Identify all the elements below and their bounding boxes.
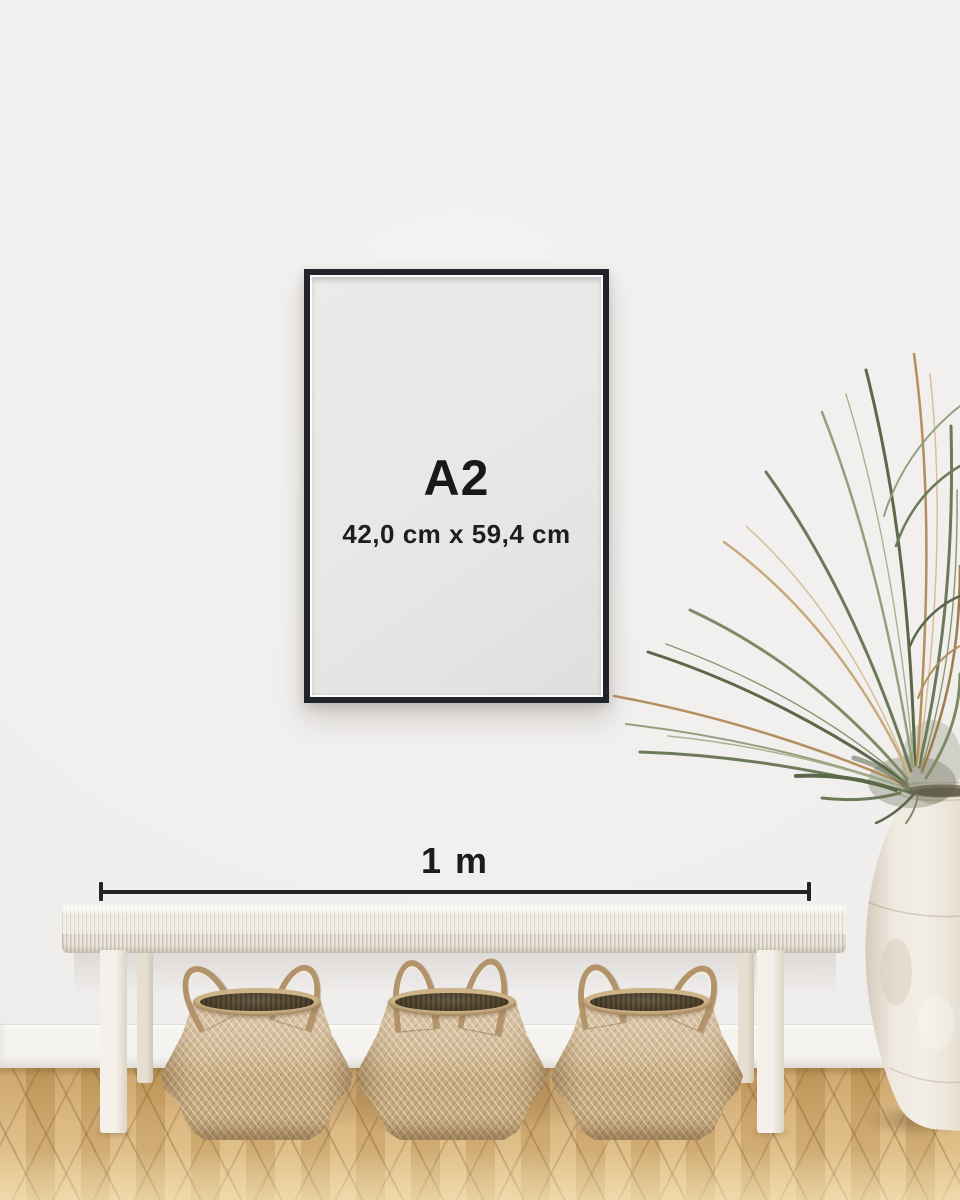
bench-front-left-leg	[100, 950, 127, 1133]
vase-body	[865, 784, 960, 1131]
poster-text-block: A2 42,0 cm x 59,4 cm	[310, 453, 603, 550]
room-scene: A2 42,0 cm x 59,4 cm	[0, 0, 960, 1200]
bench-seat-edge	[62, 934, 846, 953]
poster-size-label: A2	[310, 453, 603, 503]
poster-dimensions-label: 42,0 cm x 59,4 cm	[310, 519, 603, 550]
basket-body	[161, 998, 353, 1140]
bench-rear-left-leg	[137, 950, 153, 1083]
poster: A2 42,0 cm x 59,4 cm	[310, 275, 603, 697]
palm-fronds	[614, 354, 960, 823]
seagrass-basket	[356, 962, 548, 1140]
basket-interior	[395, 993, 509, 1011]
basket-interior	[590, 993, 704, 1011]
bench-front-right-leg	[757, 950, 784, 1133]
basket-body	[356, 998, 548, 1140]
palm-plant	[596, 346, 960, 824]
basket-interior	[200, 993, 314, 1011]
measurement-line	[101, 890, 809, 894]
basket-rim	[583, 988, 711, 1016]
seagrass-basket	[161, 962, 353, 1140]
measurement-label: 1 m	[101, 840, 809, 882]
floor-vase	[856, 782, 960, 1134]
poster-frame: A2 42,0 cm x 59,4 cm	[304, 269, 609, 703]
bench-seat	[62, 905, 846, 934]
basket-rim	[388, 988, 516, 1016]
measurement-scale: 1 m	[101, 840, 809, 894]
measurement-left-tick	[99, 882, 103, 901]
basket-body	[551, 998, 743, 1140]
measurement-right-tick	[807, 882, 811, 901]
seagrass-basket	[551, 962, 743, 1140]
basket-rim	[193, 988, 321, 1016]
floor-light-glow	[0, 1150, 960, 1200]
